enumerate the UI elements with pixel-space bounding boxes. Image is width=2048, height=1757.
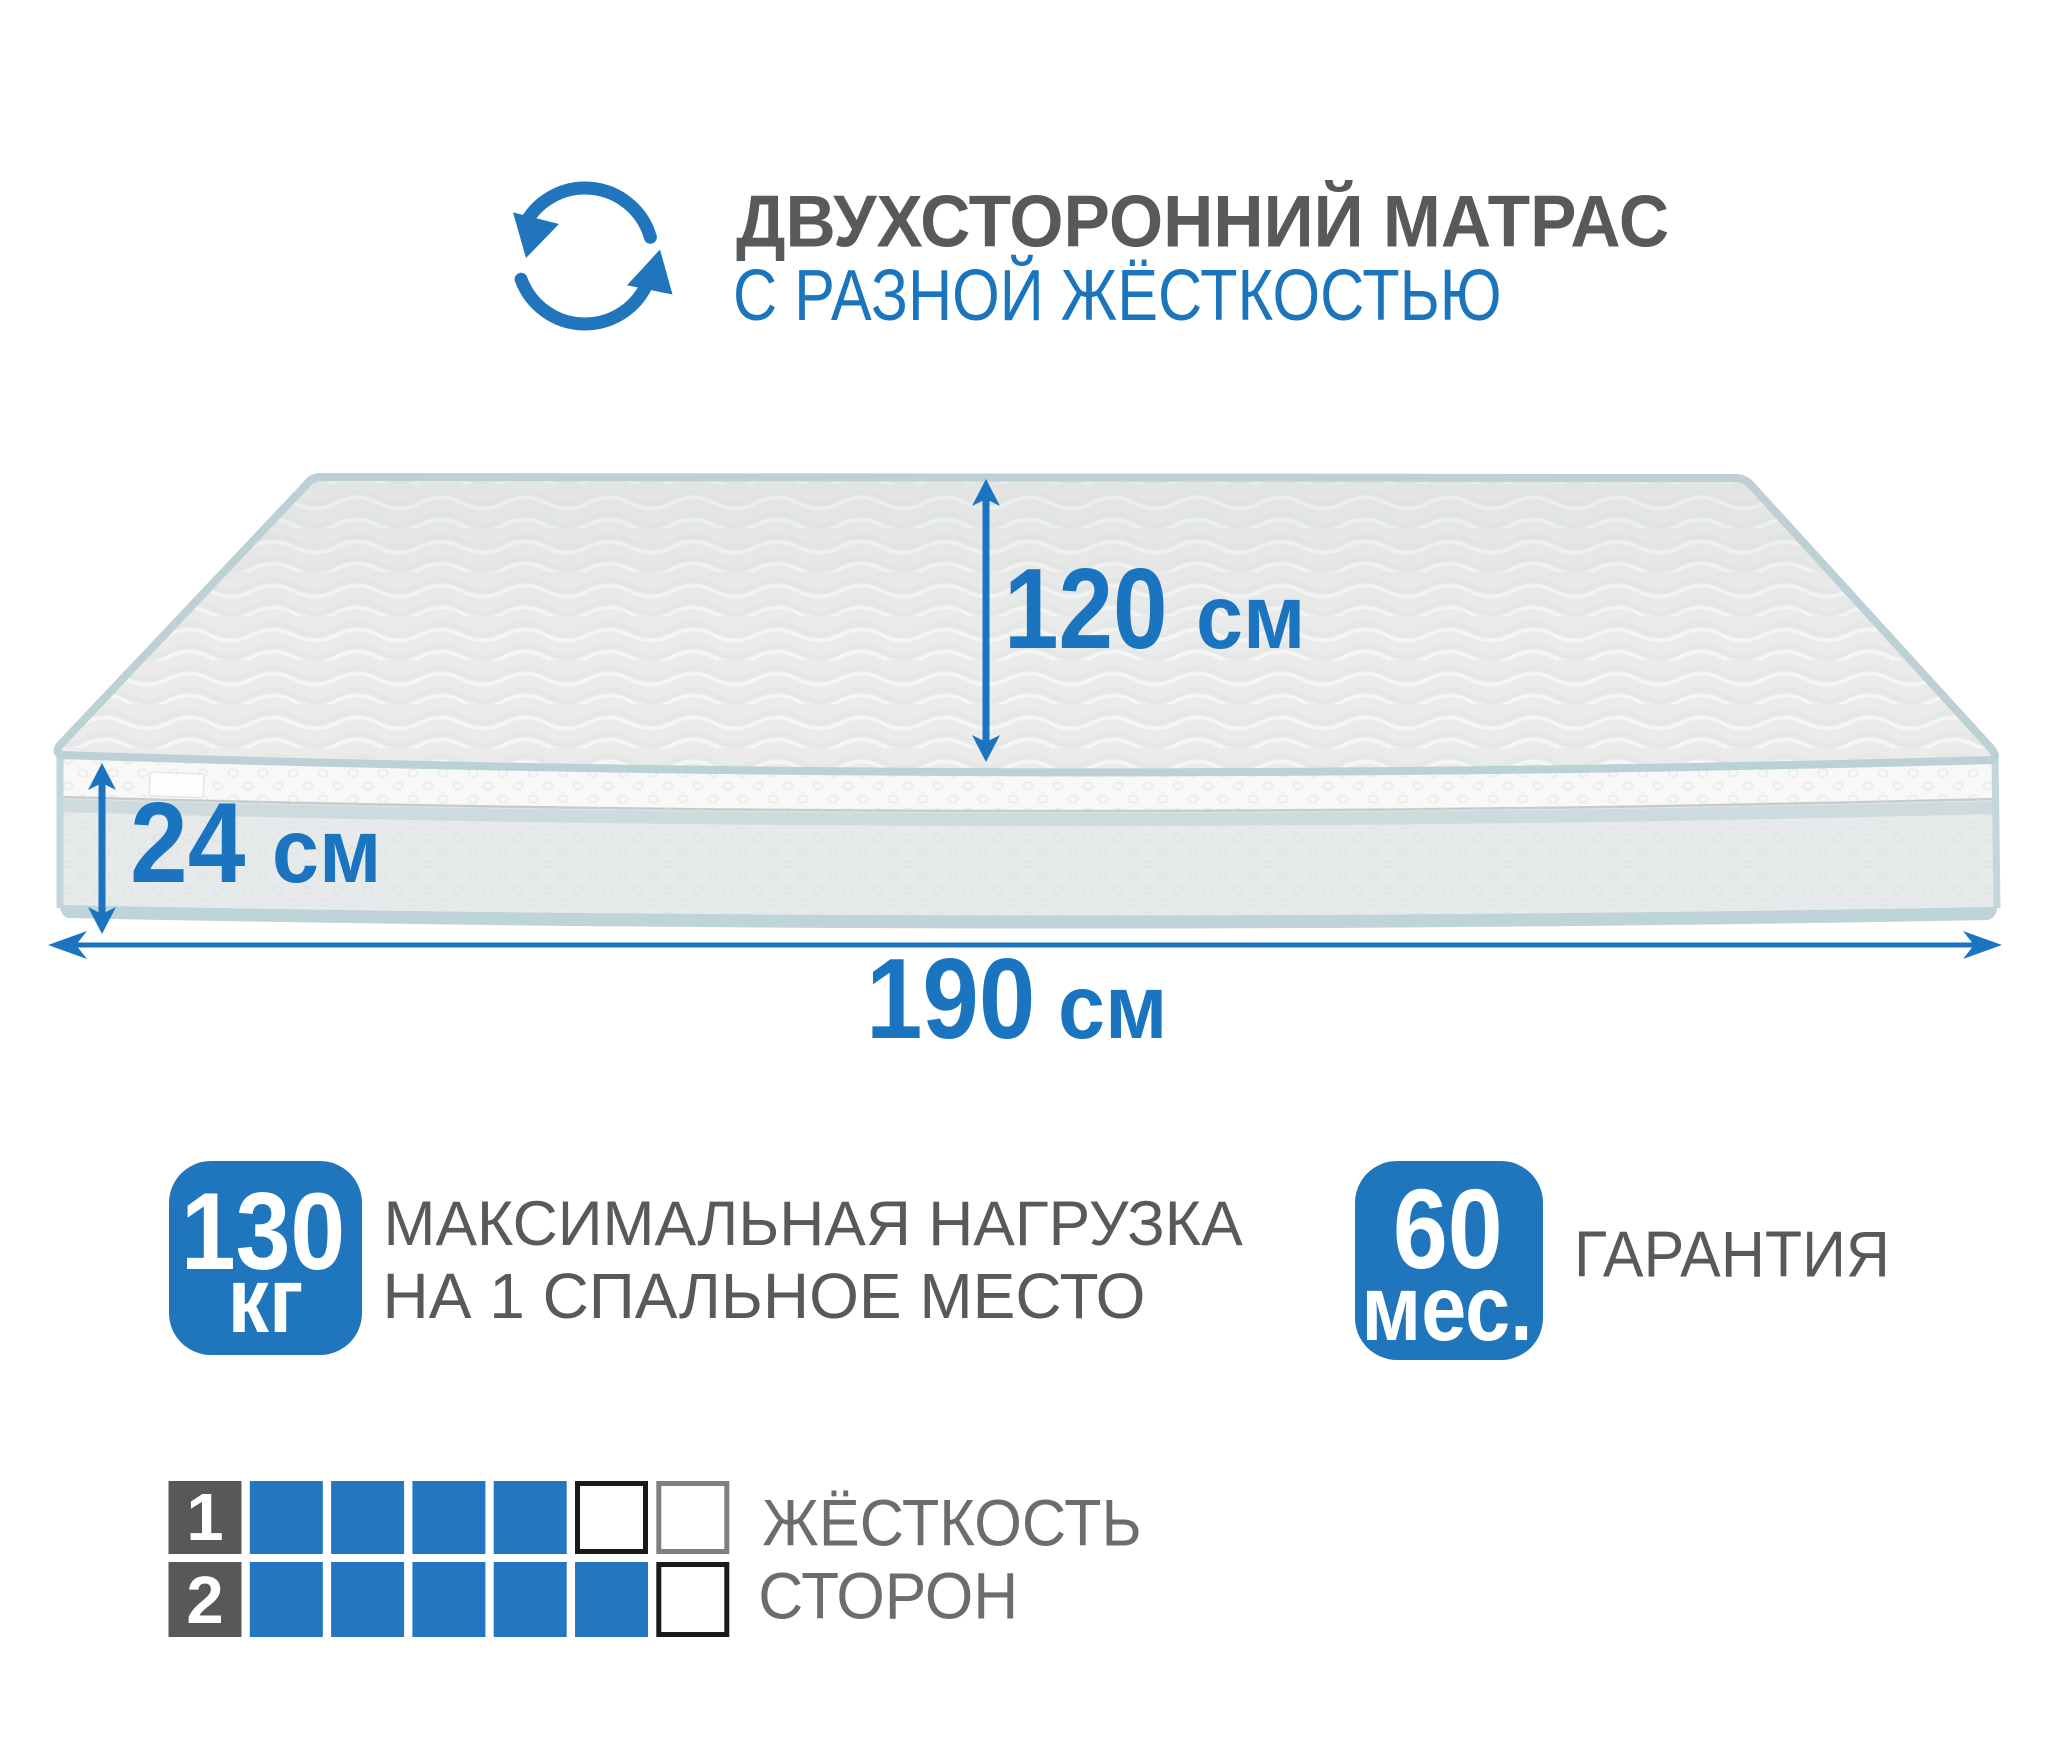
- svg-text:мес.: мес.: [1361, 1257, 1532, 1360]
- svg-text:СТОРОН: СТОРОН: [758, 1559, 1018, 1633]
- svg-text:1: 1: [186, 1480, 223, 1555]
- svg-text:кг: кг: [228, 1247, 304, 1352]
- svg-text:см: см: [272, 800, 381, 902]
- svg-text:24: 24: [130, 779, 246, 907]
- svg-text:С РАЗНОЙ ЖЁСТКОСТЬЮ: С РАЗНОЙ ЖЁСТКОСТЬЮ: [733, 254, 1502, 336]
- svg-text:ДВУХСТОРОННИЙ МАТРАС: ДВУХСТОРОННИЙ МАТРАС: [736, 181, 1669, 263]
- svg-text:ЖЁСТКОСТЬ: ЖЁСТКОСТЬ: [762, 1487, 1141, 1561]
- svg-text:МАКСИМАЛЬНАЯ НАГРУЗКА: МАКСИМАЛЬНАЯ НАГРУЗКА: [384, 1189, 1243, 1259]
- svg-text:120: 120: [1004, 545, 1168, 673]
- svg-text:НА 1 СПАЛЬНОЕ МЕСТО: НА 1 СПАЛЬНОЕ МЕСТО: [383, 1260, 1146, 1332]
- svg-text:190: 190: [866, 934, 1035, 1062]
- svg-text:ГАРАНТИЯ: ГАРАНТИЯ: [1574, 1219, 1890, 1291]
- svg-text:см: см: [1196, 566, 1305, 668]
- svg-text:2: 2: [186, 1563, 223, 1638]
- svg-text:см: см: [1058, 956, 1167, 1058]
